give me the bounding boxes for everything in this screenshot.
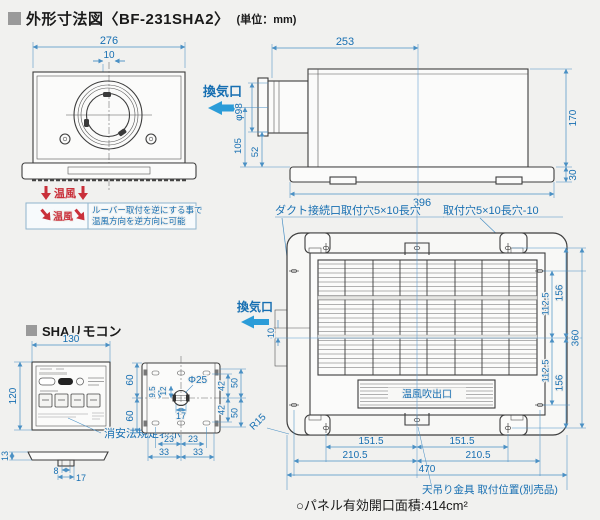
dim-9-5: 9.5 — [148, 386, 157, 398]
dim-23-left: 23 — [164, 434, 174, 444]
vent-arrow-icon — [241, 316, 269, 329]
dim-210-left: 210.5 — [342, 450, 367, 461]
dim-60-top: 60 — [125, 374, 136, 386]
dim-8: 8 — [53, 466, 58, 476]
vent-port-label: 換気口 — [203, 84, 242, 99]
panel-opening-note: ○パネル有効開口面積:414cm² — [296, 495, 468, 514]
dim-276: 276 — [100, 35, 118, 47]
mount-holes-label: 取付穴5×10長穴-10 — [443, 203, 539, 217]
warm-air-label-2: 温風 — [53, 210, 73, 223]
dim-156-top: 156 — [555, 284, 566, 301]
dim-duct-offset-10: 10 — [266, 328, 276, 338]
corner-radius-label: R15 — [248, 412, 269, 433]
warm-air-label-1: 温風 — [54, 186, 76, 200]
dim-170: 170 — [568, 109, 579, 126]
dim-42-bottom: 42 — [217, 405, 227, 415]
dim-130: 130 — [63, 334, 80, 345]
bottom-view-drawing: 温風吹出口 — [270, 208, 582, 478]
dim-30: 30 — [568, 169, 579, 181]
remote-front-drawing — [32, 362, 110, 430]
dimension-drawing-page: 外形寸法図〈BF-231SHA2〉 (単位：mm) 276 10 — [0, 0, 600, 520]
dim-52: 52 — [250, 147, 261, 158]
front-view-drawing — [22, 62, 196, 192]
dim-12: 12 — [159, 386, 168, 395]
bottom-view: ダクト接続口取付穴5×10長穴 取付穴5×10長穴-10 — [230, 200, 600, 512]
warm-air-outlet: 温風吹出口 — [358, 380, 495, 408]
dim-duct-dia: φ98 — [234, 103, 245, 121]
dim-10: 10 — [103, 50, 115, 61]
page-title-text: 外形寸法図〈BF-231SHA2〉 — [26, 8, 230, 29]
dim-360: 360 — [571, 329, 582, 346]
dim-253: 253 — [336, 36, 354, 48]
section-marker-icon — [8, 12, 21, 25]
duct-holes-label: ダクト接続口取付穴5×10長穴 — [275, 203, 421, 217]
remote-side-drawing — [28, 452, 108, 466]
dim-33-right: 33 — [193, 447, 203, 457]
louver-note-line2: 温風方向を逆方向に可能 — [92, 216, 186, 226]
warm-air-annotation: 温風 温風 ルーバー取付を逆にする事で 温風方向を逆方向に可能 — [26, 186, 203, 229]
page-title: 外形寸法図〈BF-231SHA2〉 (単位：mm) — [8, 8, 296, 29]
side-view: 換気口 253 φ98 105 52 170 30 396 — [200, 34, 600, 219]
dim-42-top: 42 — [217, 381, 227, 391]
dim-470: 470 — [419, 464, 436, 475]
warm-air-arrow-icon — [78, 186, 88, 200]
louver-note-line1: ルーバー取付を逆にする事で — [92, 205, 203, 215]
dim-210-right: 210.5 — [465, 450, 490, 461]
dim-156-bottom: 156 — [555, 374, 566, 391]
dim-120: 120 — [8, 387, 19, 404]
section-marker-icon — [26, 325, 37, 336]
vent-port-label-bottom: 換気口 — [237, 299, 273, 314]
dim-17-plate: 17 — [176, 411, 186, 421]
dim-33-left: 33 — [159, 447, 169, 457]
dim-151-right: 151.5 — [449, 436, 474, 447]
dim-23-right: 23 — [188, 434, 198, 444]
dim-112-top: 112.5 — [541, 292, 552, 315]
dim-13: 13 — [0, 451, 10, 461]
dim-60-bottom: 60 — [125, 410, 136, 422]
page-title-unit: (単位：mm) — [237, 11, 297, 27]
dim-112-bottom: 112.5 — [541, 359, 552, 382]
dim-phi25: Φ25 — [188, 375, 208, 386]
front-view: 276 10 温風 — [8, 34, 223, 234]
warm-air-outlet-label: 温風吹出口 — [402, 388, 452, 401]
dim-151-left: 151.5 — [358, 436, 383, 447]
dim-17: 17 — [76, 473, 86, 483]
side-view-drawing — [258, 69, 554, 184]
warm-air-arrow-icon — [41, 186, 51, 200]
dim-105: 105 — [233, 138, 244, 154]
